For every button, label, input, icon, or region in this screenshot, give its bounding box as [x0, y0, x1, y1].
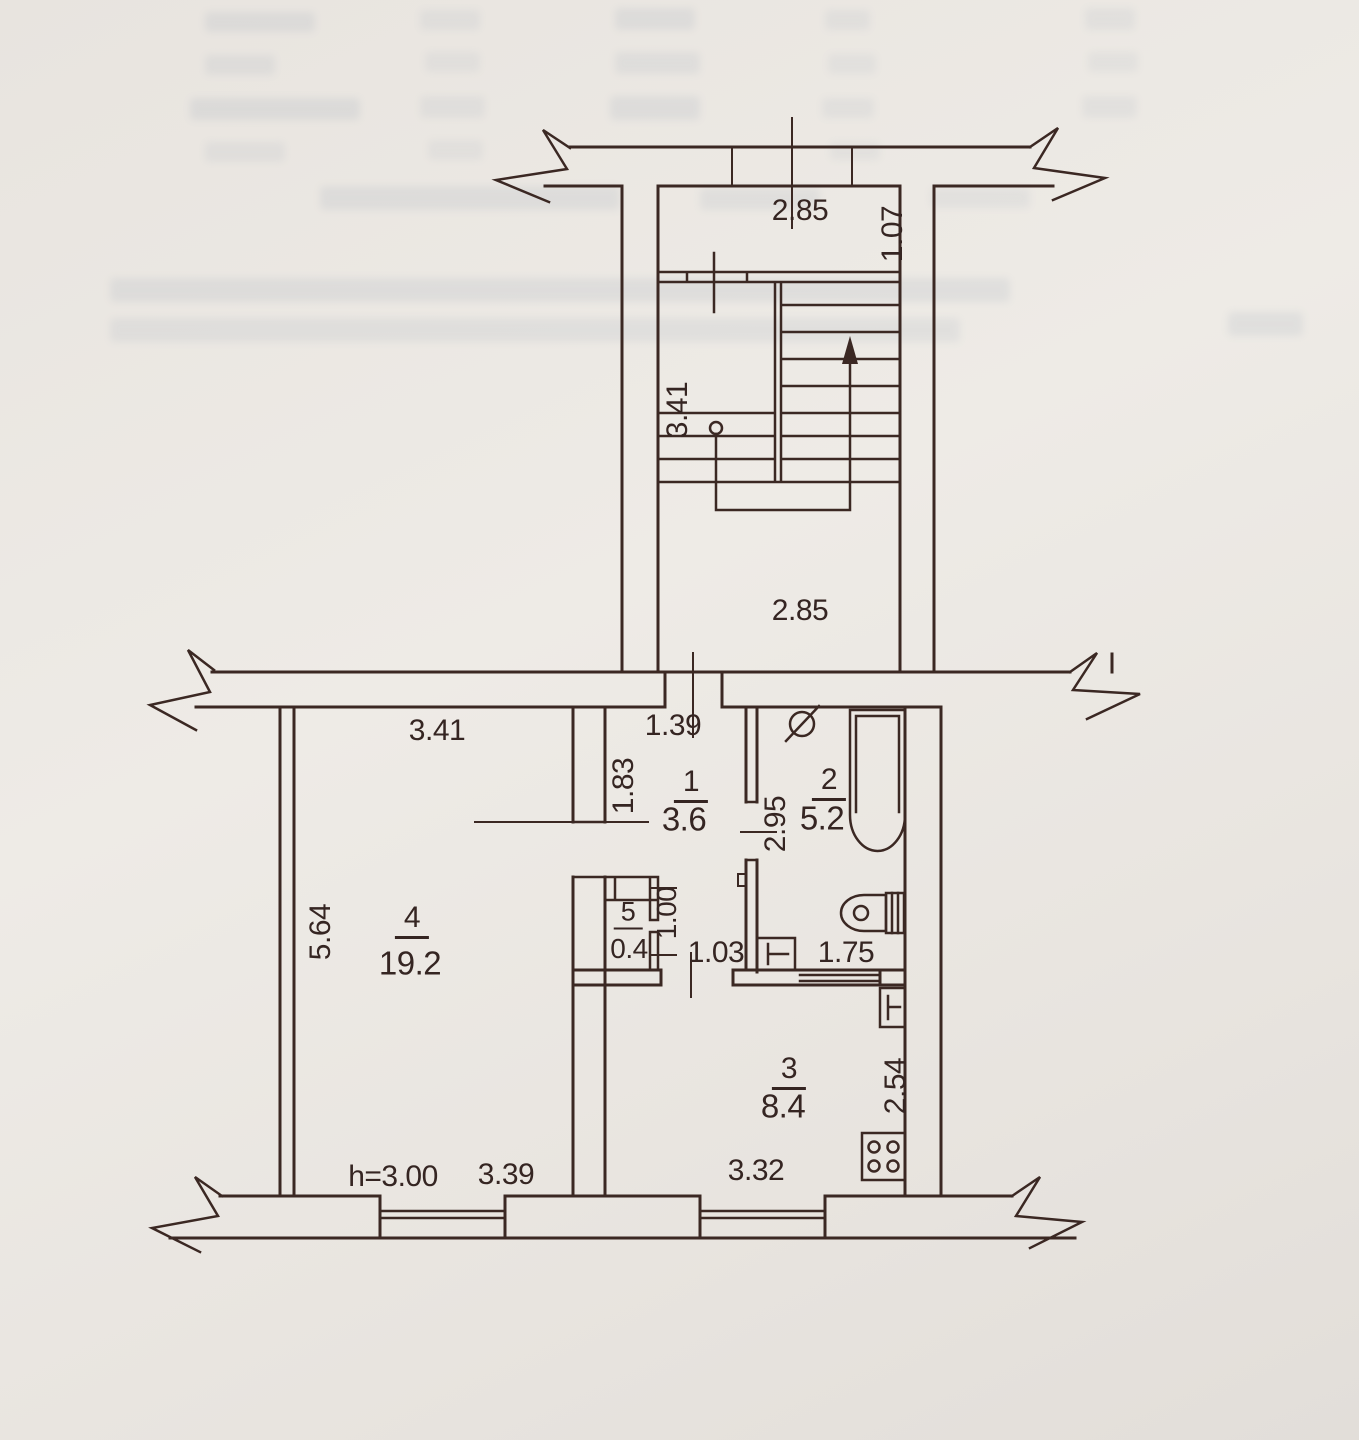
room-number-3: 3 — [772, 1054, 806, 1090]
dim-stair-flight-length: 3.41 — [663, 382, 693, 438]
dim-closet-height: 1.00 — [653, 887, 681, 940]
dim-bathroom-bottom-width: 1.75 — [818, 938, 874, 968]
scanned-floor-plan-page: 2.85 1.07 3.41 2.85 3.41 1.39 1.83 1 3.6… — [0, 0, 1359, 1440]
radiator-icon — [757, 938, 795, 970]
room-area-2: 5.2 — [800, 802, 844, 835]
dim-bathroom-left-height: 2.95 — [761, 796, 791, 852]
ceiling-height-label: h=3.00 — [348, 1162, 438, 1192]
bathtub-icon — [850, 710, 905, 851]
walls — [170, 147, 1112, 1238]
dim-stair-top-width: 2.85 — [772, 196, 828, 226]
room-number-4: 4 — [395, 903, 429, 939]
radiator-icon — [880, 988, 905, 1027]
window-icon — [380, 1211, 505, 1218]
dimension-ticks — [475, 118, 852, 997]
dim-room4-bottom-width: 3.39 — [478, 1160, 534, 1190]
window-icon — [700, 1211, 825, 1218]
break-mark — [496, 130, 570, 202]
break-mark — [150, 650, 214, 730]
valve-icon — [786, 706, 819, 741]
dim-hallway-bottom-door: 1.03 — [688, 938, 744, 968]
room-area-1: 3.6 — [662, 803, 706, 836]
toilet-icon — [841, 893, 904, 933]
room-number-1: 1 — [674, 767, 708, 803]
break-mark — [152, 1177, 222, 1252]
dim-kitchen-right-height: 2.54 — [881, 1058, 911, 1114]
break-mark — [1070, 653, 1140, 719]
stairs-up-arrow-icon — [710, 336, 858, 510]
dim-stair-bottom-width: 2.85 — [772, 596, 828, 626]
room-number-2: 2 — [812, 765, 846, 801]
room-area-4: 19.2 — [379, 947, 441, 980]
room-area-3: 8.4 — [761, 1090, 805, 1123]
dim-room4-left-height: 5.64 — [306, 904, 336, 960]
stove-icon — [862, 1133, 905, 1180]
dim-hallway-left-height: 1.83 — [609, 758, 639, 814]
room-area-5: 0.4 — [610, 935, 647, 963]
break-mark — [1030, 128, 1105, 200]
dim-room4-top-width: 3.41 — [409, 716, 465, 746]
dim-stair-landing-depth: 1.07 — [878, 206, 908, 262]
stairs-treads — [658, 253, 900, 482]
room-number-5: 5 — [614, 899, 643, 930]
dim-hallway-width: 1.39 — [645, 711, 701, 741]
dim-kitchen-bottom-width: 3.32 — [728, 1156, 784, 1186]
partition-detail — [800, 975, 880, 981]
